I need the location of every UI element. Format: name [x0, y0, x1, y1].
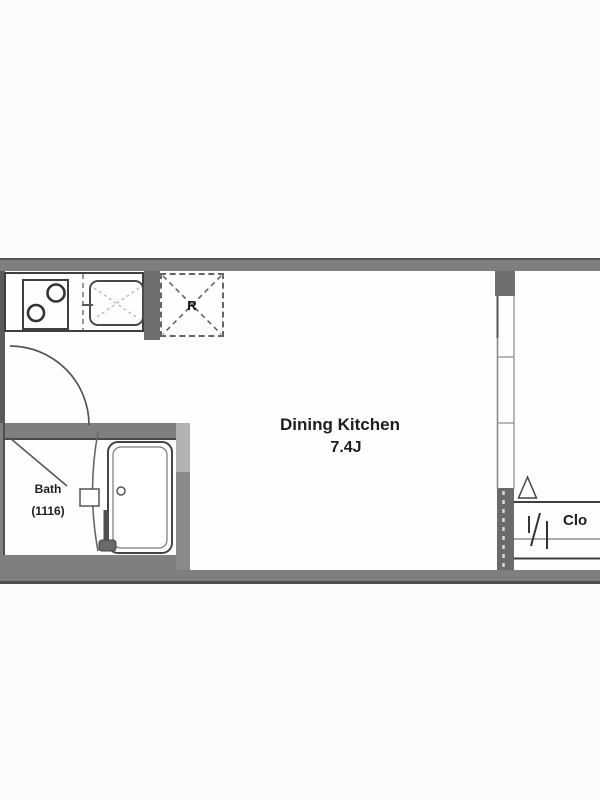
wall-top	[0, 258, 600, 271]
floorplan-canvas: R Dining Kitchen 7.4J Bath (1116) Clo	[0, 0, 600, 800]
bath-wall-top	[0, 423, 176, 438]
refrigerator-label: R	[160, 273, 224, 337]
bath-size: (1116)	[31, 504, 64, 518]
bath-room	[5, 438, 176, 553]
dining-kitchen-size: 7.4J	[330, 439, 361, 457]
sink-icon	[89, 280, 144, 326]
kitchen-wall-stub	[144, 271, 160, 340]
bath-label: Bath	[35, 482, 62, 496]
dining-kitchen-label: Dining Kitchen	[280, 415, 400, 435]
closet-label: Clo	[563, 512, 587, 529]
partition-wall-stub	[495, 271, 515, 296]
bath-dining-wall-upper	[176, 423, 190, 472]
bath-dining-wall-lower	[176, 472, 190, 570]
stove-icon	[22, 279, 69, 330]
wall-bottom	[0, 570, 600, 584]
closet-side-wall	[497, 488, 514, 570]
